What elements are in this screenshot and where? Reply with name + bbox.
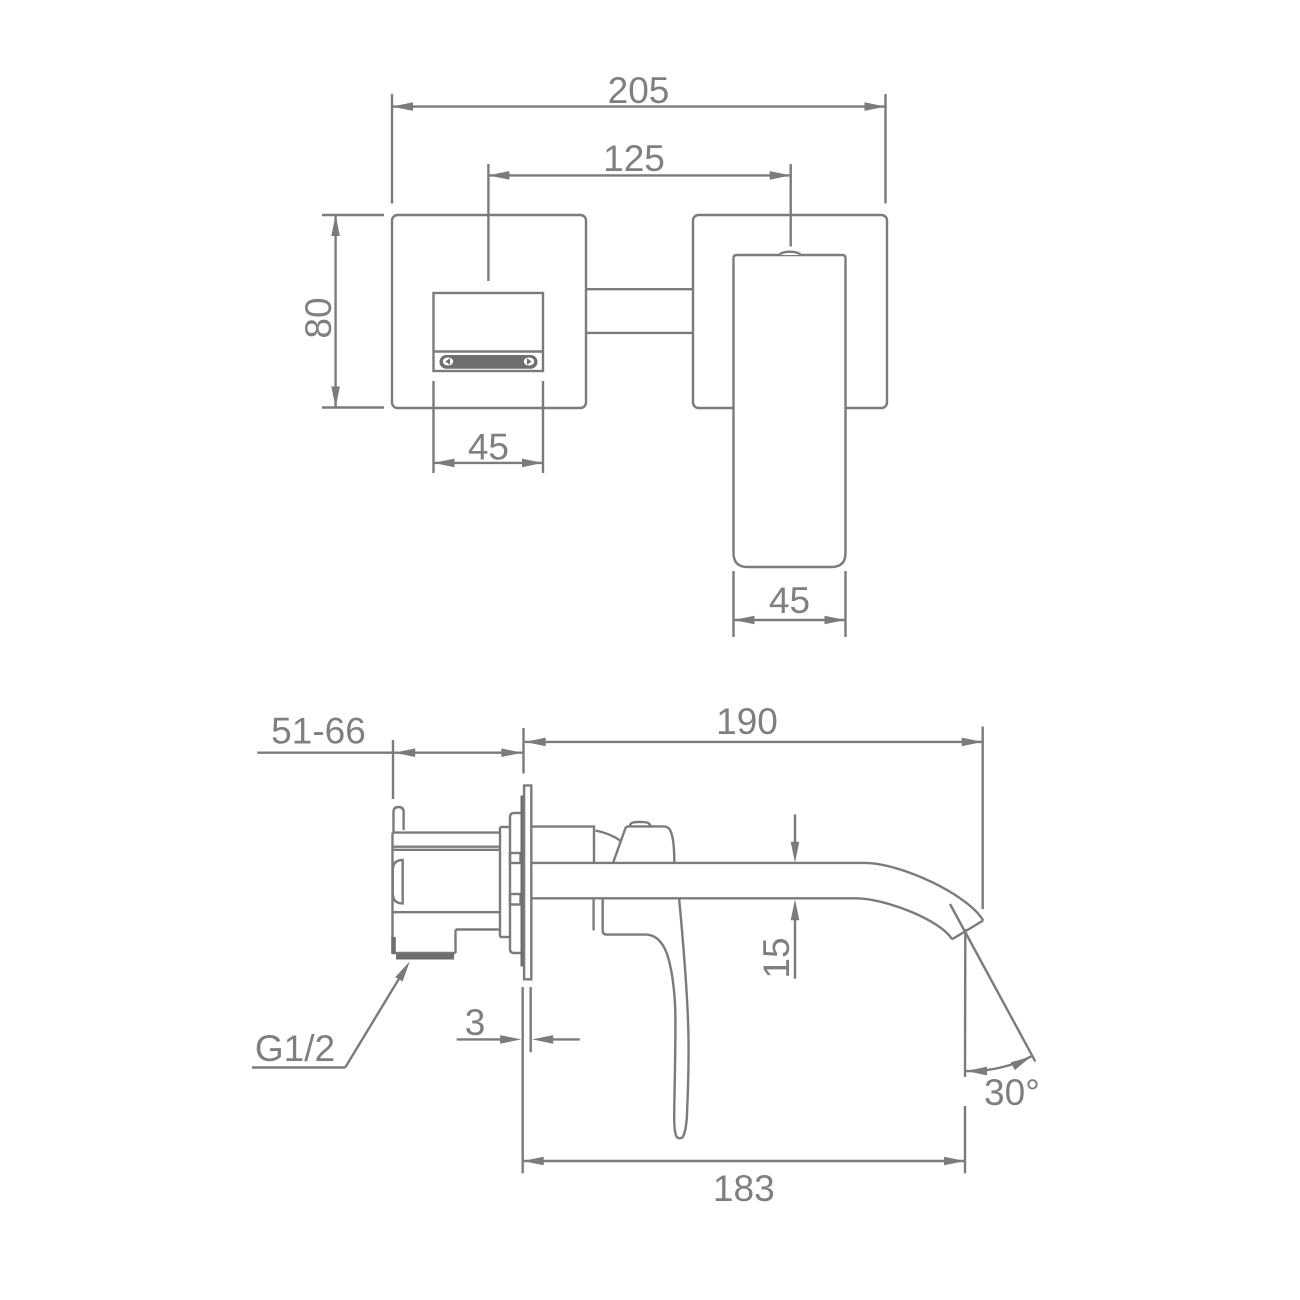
svg-text:51-66: 51-66 <box>271 711 366 752</box>
svg-text:45: 45 <box>769 580 810 621</box>
svg-text:205: 205 <box>608 70 670 111</box>
svg-text:G1/2: G1/2 <box>255 1028 335 1069</box>
svg-text:125: 125 <box>603 138 665 179</box>
svg-text:190: 190 <box>716 701 778 742</box>
svg-text:80: 80 <box>298 297 339 338</box>
svg-text:30°: 30° <box>984 1072 1040 1113</box>
svg-text:15: 15 <box>756 937 797 978</box>
svg-text:183: 183 <box>713 1168 775 1209</box>
svg-text:45: 45 <box>468 427 509 468</box>
svg-text:3: 3 <box>465 1002 486 1043</box>
